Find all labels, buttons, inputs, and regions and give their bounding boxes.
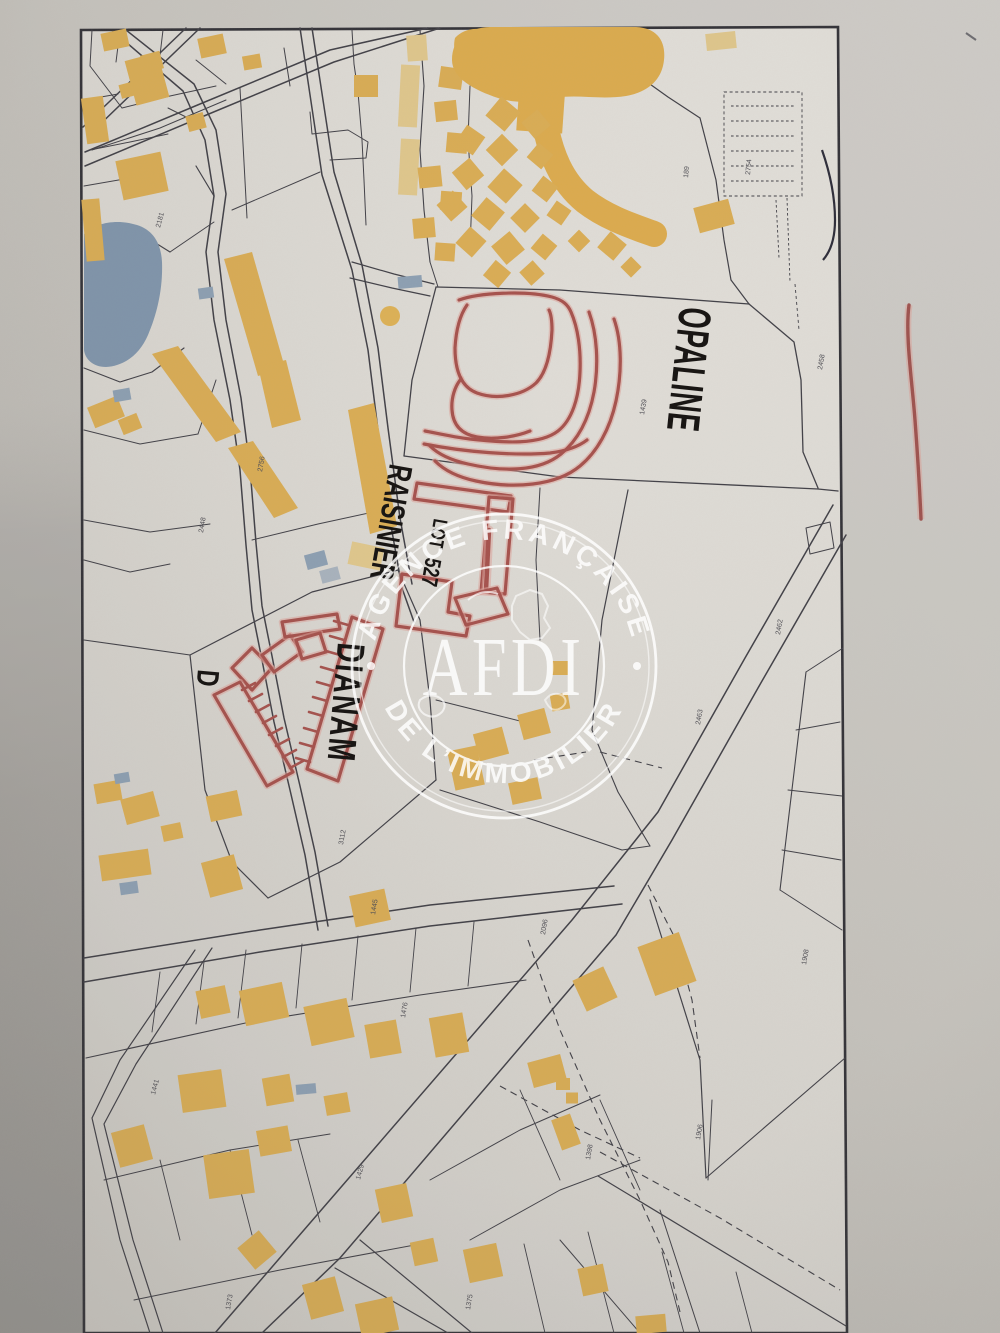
svg-text:D: D [190,668,227,688]
svg-text:AFDI: AFDI [423,620,586,713]
